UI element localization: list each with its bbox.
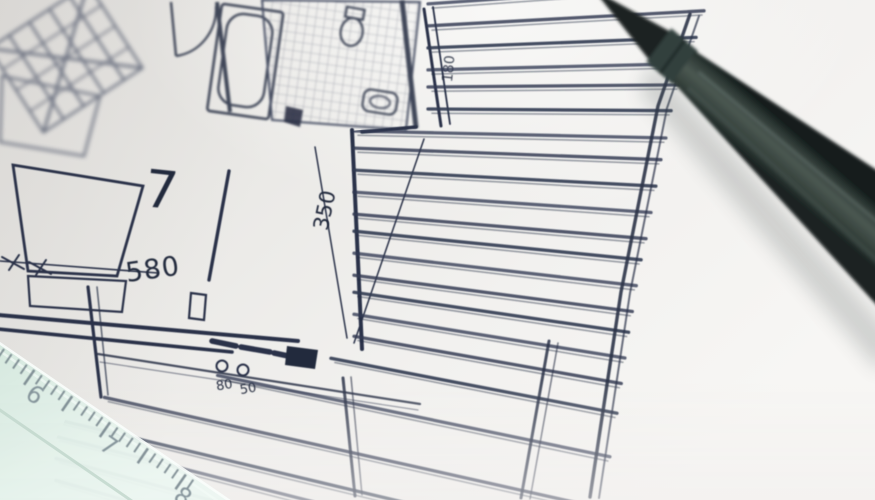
photo-canvas: 7 580 350 180 80 50 6 7 8 [0,0,875,500]
threshold-block [285,346,318,369]
architectural-plan-photo: 7 580 350 180 80 50 6 7 8 [0,0,875,500]
room-number-label: 7 [142,159,181,222]
rafter-line [428,109,671,111]
rafter-line [428,85,679,87]
